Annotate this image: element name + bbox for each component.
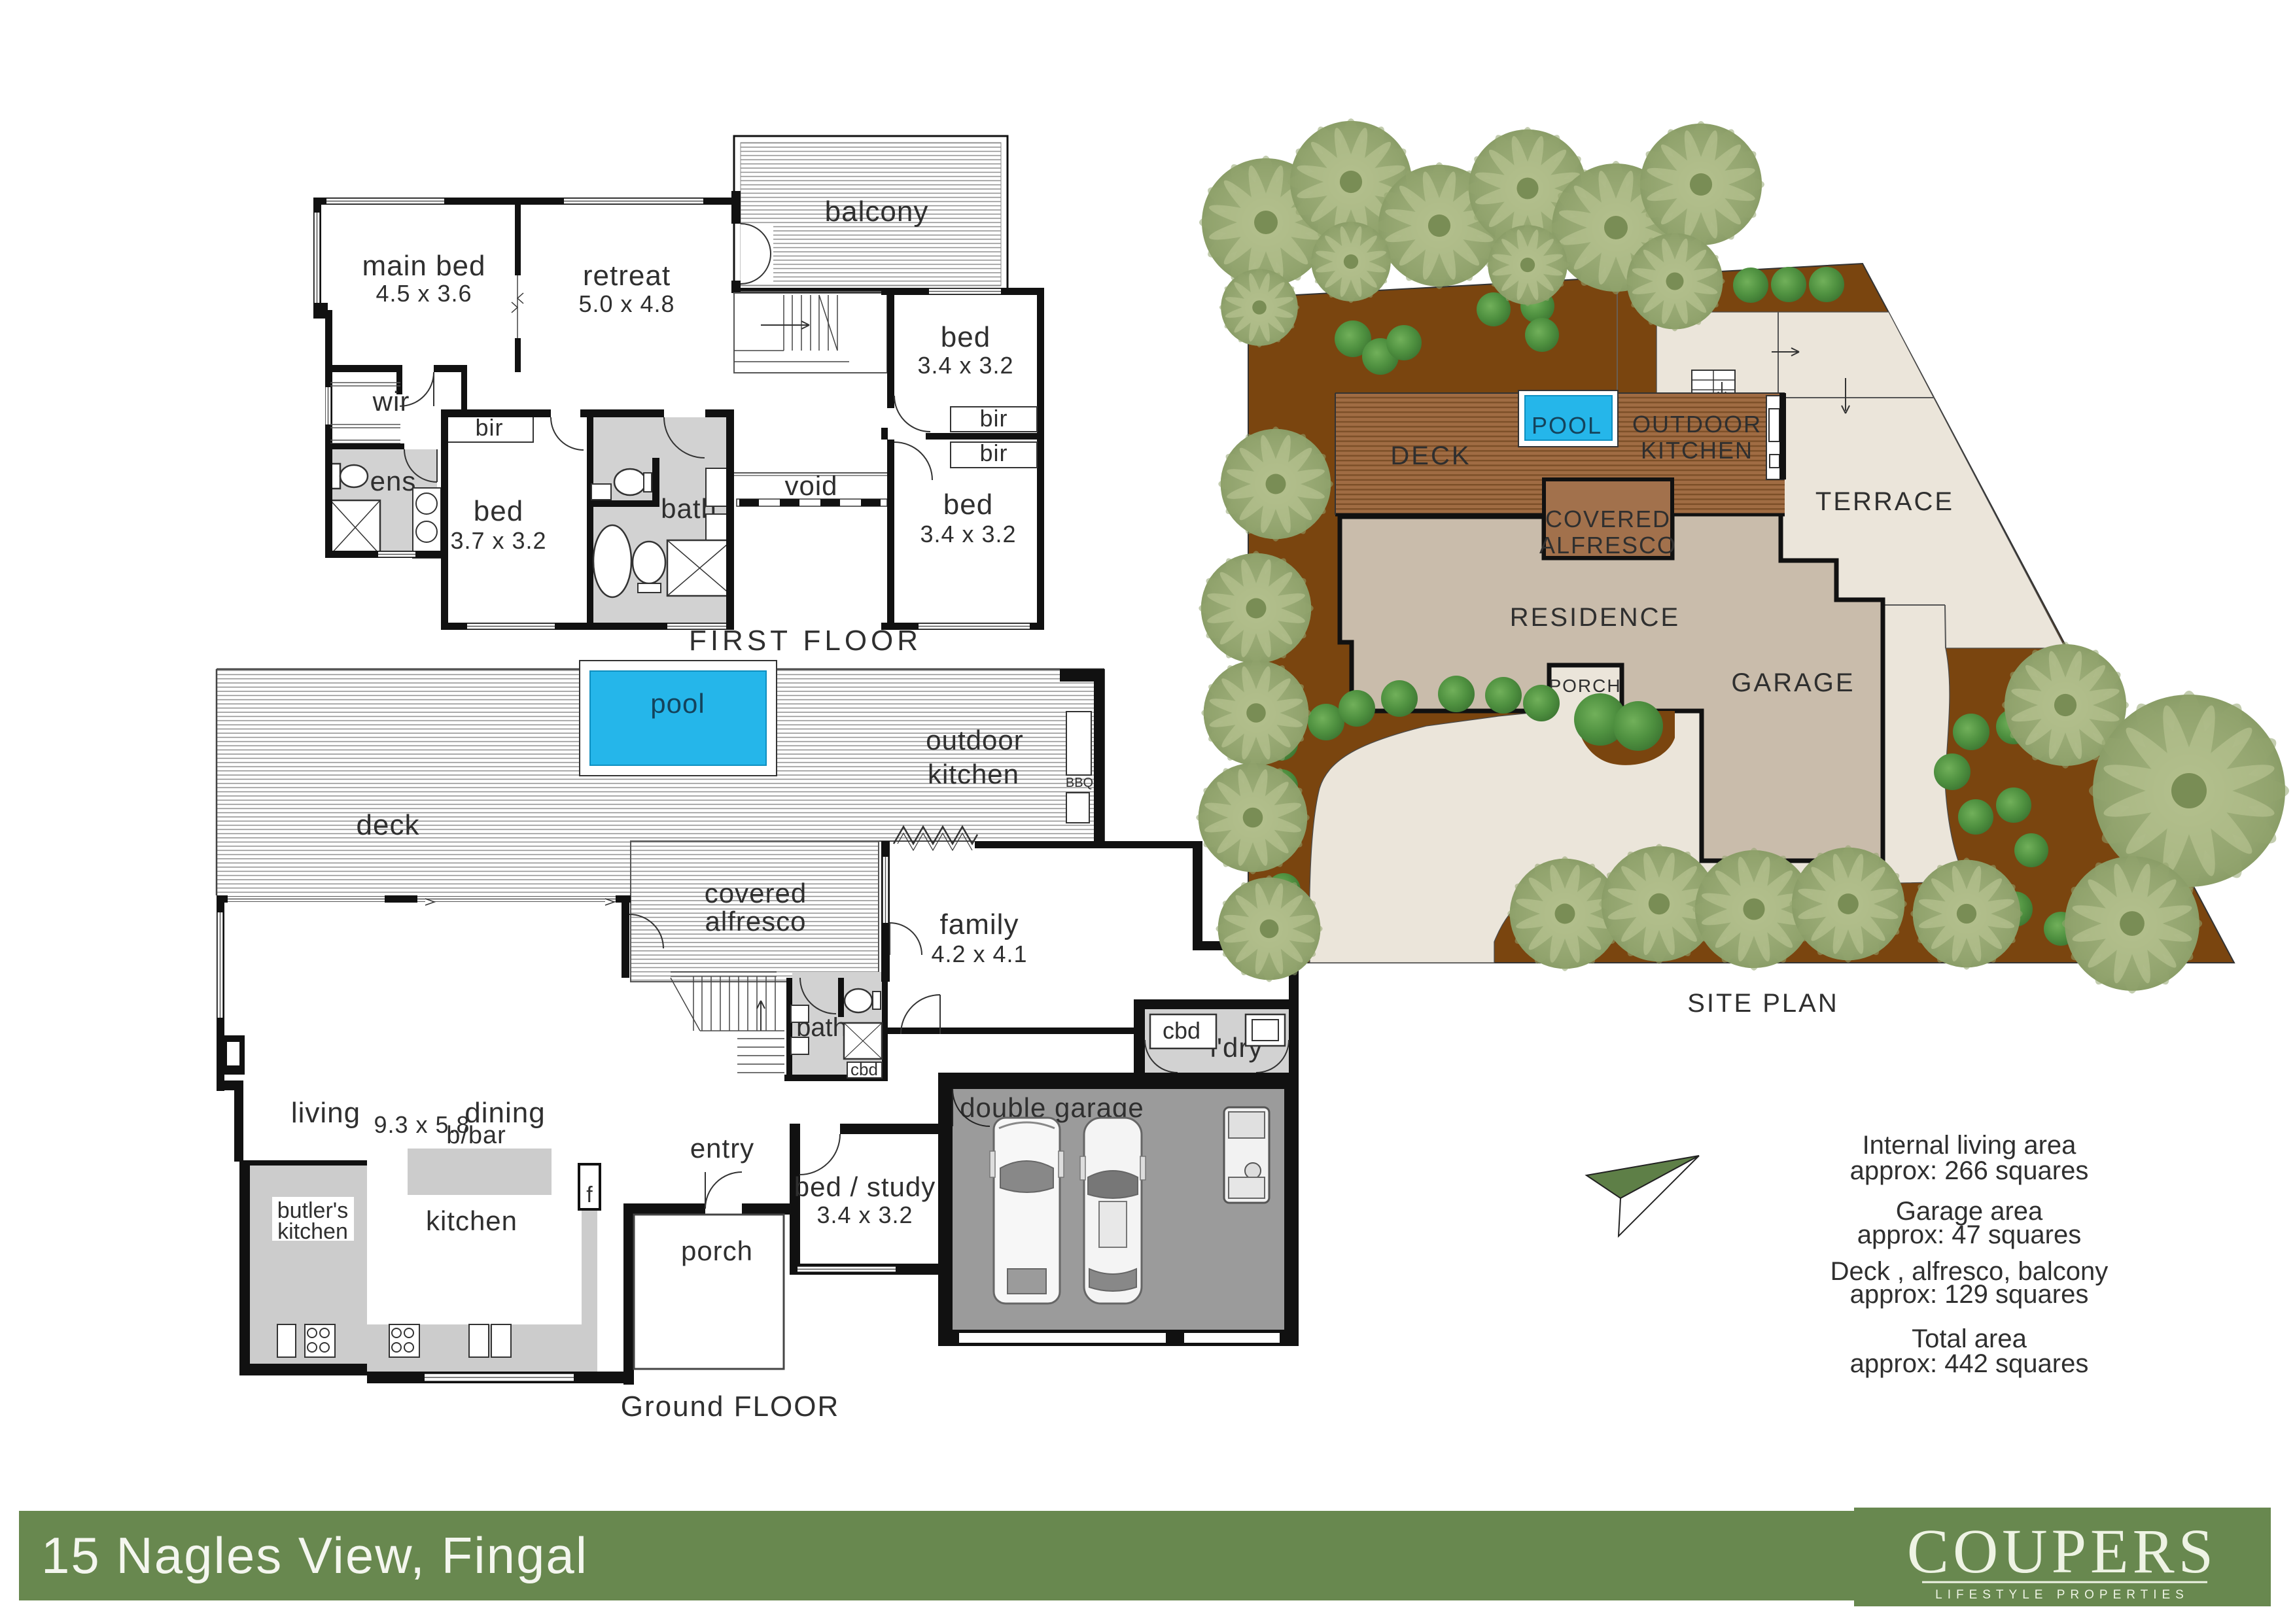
svg-text:b/bar: b/bar [446,1122,506,1149]
svg-text:COVERED: COVERED [1545,506,1671,532]
svg-text:4.2 x 4.1: 4.2 x 4.1 [931,941,1027,967]
svg-text:main bed: main bed [362,250,485,282]
svg-text:living: living [291,1097,360,1129]
svg-text:bir: bir [979,405,1007,432]
svg-text:3.4 x 3.2: 3.4 x 3.2 [917,352,1013,379]
svg-text:4.5 x 3.6: 4.5 x 3.6 [376,280,472,307]
svg-text:FIRST FLOOR: FIRST FLOOR [689,625,922,657]
svg-text:wir: wir [372,386,410,417]
svg-text:bir: bir [979,440,1007,466]
svg-text:LIFESTYLE PROPERTIES: LIFESTYLE PROPERTIES [1935,1588,2189,1602]
svg-text:3.7 x 3.2: 3.7 x 3.2 [450,527,546,554]
svg-text:DECK: DECK [1390,441,1471,470]
svg-text:approx: 129 squares: approx: 129 squares [1850,1280,2089,1309]
svg-text:POOL: POOL [1532,412,1602,439]
svg-text:void: void [784,470,837,501]
svg-text:Ground FLOOR: Ground FLOOR [621,1391,840,1423]
svg-text:15 Nagles View, Fingal: 15 Nagles View, Fingal [41,1527,588,1584]
svg-text:KITCHEN: KITCHEN [1641,437,1753,464]
svg-text:bed: bed [943,489,993,521]
svg-text:PORCH: PORCH [1549,676,1621,696]
svg-text:TERRACE: TERRACE [1815,487,1954,516]
svg-text:cbd: cbd [850,1060,878,1079]
svg-text:approx: 266 squares: approx: 266 squares [1850,1156,2089,1185]
svg-text:cbd: cbd [1163,1017,1200,1044]
svg-text:balcony: balcony [825,196,929,228]
svg-text:outdoor: outdoor [926,725,1023,755]
svg-text:bir: bir [475,414,503,441]
svg-text:3.4 x 3.2: 3.4 x 3.2 [920,521,1016,547]
svg-text:retreat: retreat [583,260,671,292]
svg-text:BBQ: BBQ [1066,776,1093,790]
svg-text:covered: covered [705,878,807,908]
svg-text:bed: bed [941,321,990,353]
svg-text:deck: deck [357,809,420,841]
svg-text:alfresco: alfresco [705,906,806,937]
svg-text:OUTDOOR: OUTDOOR [1632,411,1762,438]
svg-text:Internal living area: Internal living area [1863,1131,2077,1160]
svg-text:3.4 x 3.2: 3.4 x 3.2 [816,1201,913,1228]
svg-text:kitchen: kitchen [928,759,1019,789]
svg-text:5.0 x 4.8: 5.0 x 4.8 [578,290,674,317]
svg-text:bed / study: bed / study [794,1171,936,1202]
svg-text:family: family [940,908,1019,941]
svg-text:RESIDENCE: RESIDENCE [1510,603,1680,632]
svg-text:kitchen: kitchen [426,1205,517,1236]
svg-text:approx: 47 squares: approx: 47 squares [1857,1220,2081,1249]
svg-text:ens: ens [370,466,417,496]
svg-text:f: f [586,1183,593,1207]
svg-text:GARAGE: GARAGE [1731,668,1855,697]
svg-text:kitchen: kitchen [277,1219,348,1244]
svg-text:ALFRESCO: ALFRESCO [1539,532,1677,559]
svg-text:porch: porch [681,1235,753,1266]
svg-text:entry: entry [690,1133,754,1164]
svg-text:pool: pool [650,688,705,719]
svg-text:approx: 442 squares: approx: 442 squares [1850,1349,2089,1378]
svg-text:COUPERS: COUPERS [1907,1516,2217,1586]
svg-text:SITE PLAN: SITE PLAN [1687,989,1839,1018]
svg-text:bed: bed [474,495,523,527]
